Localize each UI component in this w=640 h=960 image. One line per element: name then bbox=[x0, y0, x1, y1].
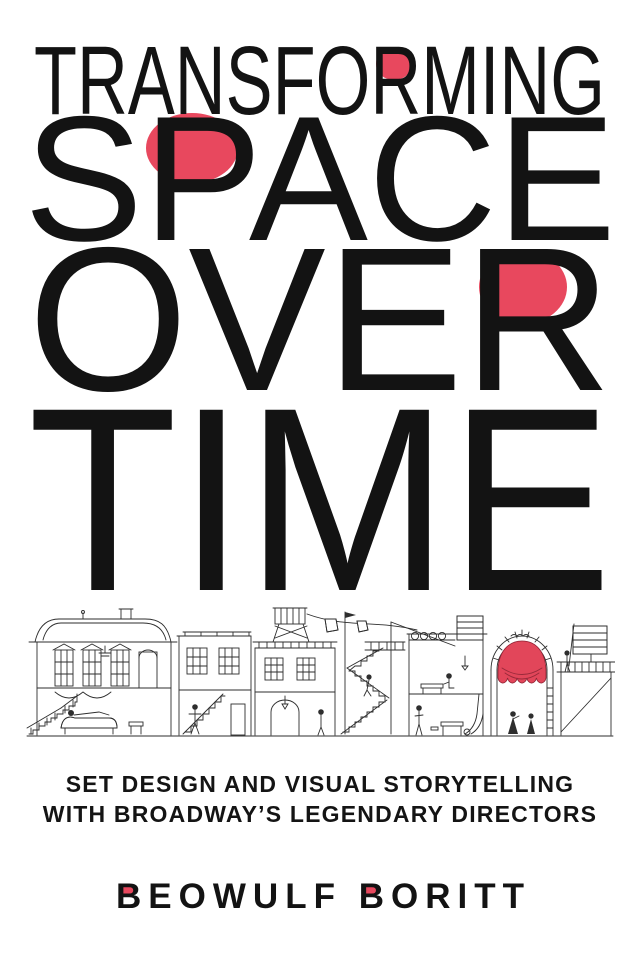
red-stage-curtain bbox=[498, 641, 546, 683]
set-design-illustration bbox=[25, 606, 615, 746]
standing-figure bbox=[318, 709, 324, 735]
mansard-house bbox=[29, 609, 177, 735]
stage-right-platform bbox=[557, 624, 615, 735]
barrel bbox=[420, 632, 427, 639]
row-house bbox=[177, 632, 251, 735]
barrel bbox=[429, 632, 436, 639]
lower-door bbox=[231, 704, 245, 735]
arched-opening bbox=[271, 700, 299, 735]
stacked-flats bbox=[573, 626, 607, 654]
author-lockup: BEOWULF BORITT bbox=[0, 860, 640, 930]
desk-and-seated-figure bbox=[421, 673, 454, 694]
proscenium-arch bbox=[491, 630, 553, 735]
pedimented-window bbox=[109, 644, 131, 686]
costumed-figure bbox=[527, 713, 535, 734]
pillar-ladder bbox=[547, 688, 553, 728]
subtitle: SET DESIGN AND VISUAL STORYTELLING WITH … bbox=[0, 769, 640, 829]
water-tower bbox=[273, 608, 309, 642]
hanging-lamp bbox=[282, 696, 288, 709]
side-table bbox=[129, 722, 143, 726]
barrel bbox=[438, 632, 445, 639]
book-cover: TRANSFORMING SPACE OVER TIME bbox=[0, 0, 640, 960]
drapery-swags bbox=[55, 692, 111, 698]
stacked-flats bbox=[457, 616, 483, 640]
scaffold-stairs bbox=[341, 612, 455, 734]
author-name: BEOWULF BORITT bbox=[116, 877, 524, 916]
standing-figure bbox=[415, 705, 423, 735]
title-word-time: TIME bbox=[28, 353, 612, 600]
hanging-light bbox=[462, 656, 468, 670]
chaise-with-figure bbox=[61, 710, 117, 734]
subtitle-line-1: SET DESIGN AND VISUAL STORYTELLING bbox=[0, 769, 640, 799]
stool bbox=[431, 727, 438, 730]
pennant-flag bbox=[345, 612, 356, 618]
costumed-figure bbox=[508, 711, 519, 734]
subtitle-line-2: WITH BROADWAY’S LEGENDARY DIRECTORS bbox=[0, 799, 640, 829]
barrel bbox=[411, 632, 418, 639]
tenement bbox=[253, 608, 417, 735]
diagonal-brace bbox=[561, 678, 611, 732]
work-table bbox=[441, 722, 463, 726]
workshop-frame bbox=[407, 616, 487, 735]
pedimented-window bbox=[81, 644, 103, 686]
parlor-door bbox=[139, 650, 157, 688]
curved-stair bbox=[464, 694, 483, 735]
pedimented-window bbox=[53, 644, 75, 686]
title-lockup: TRANSFORMING SPACE OVER TIME bbox=[0, 0, 640, 600]
